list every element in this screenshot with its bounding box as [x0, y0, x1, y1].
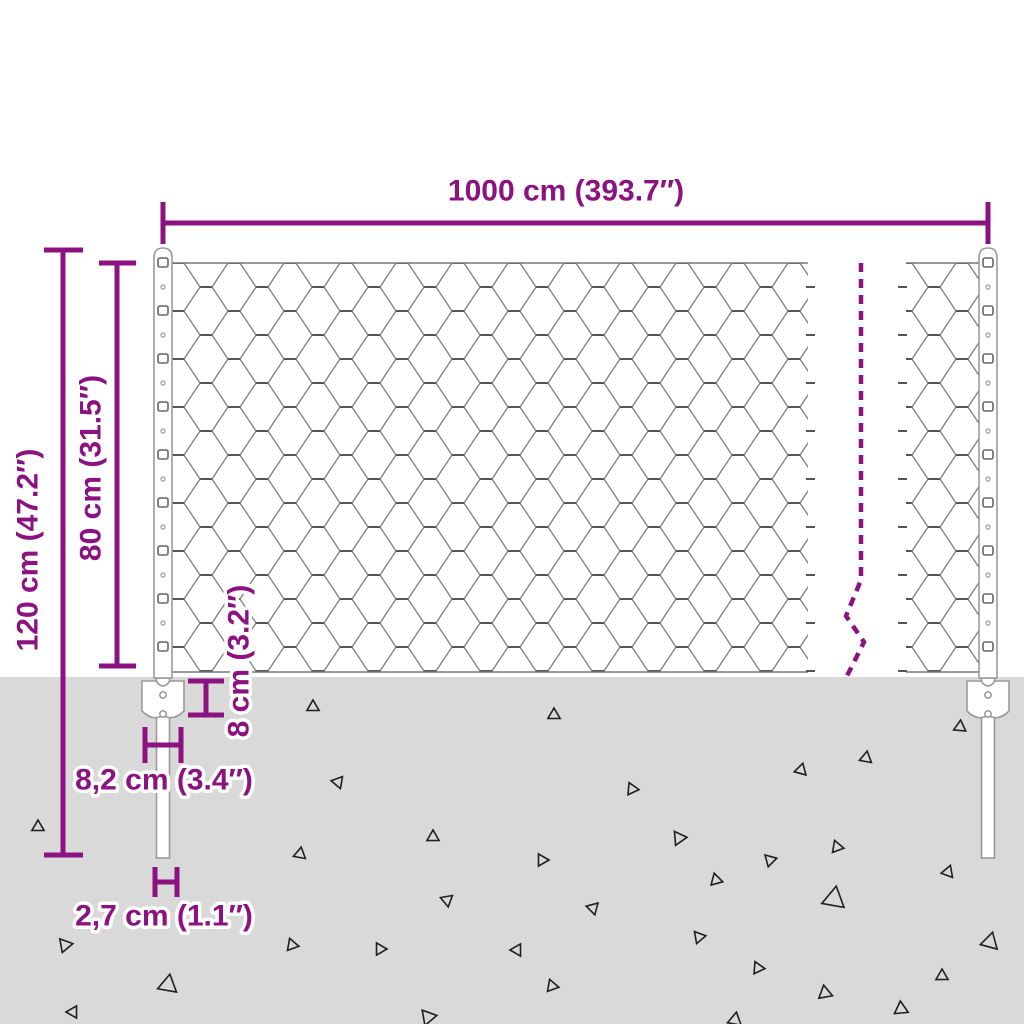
anchor-depth-dimension-label: 8 cm (3.2″) [223, 585, 256, 738]
mesh-cut-stubs-left [898, 287, 907, 671]
width-dimension-label: 1000 cm (393.7″) [448, 175, 684, 208]
fence-height-dimension-label: 80 cm (31.5″) [75, 375, 108, 561]
ground-soil [0, 677, 1024, 1024]
break-line-dashed [846, 263, 864, 676]
width-dimension-line [163, 202, 988, 244]
bracket-width-dimension-label: 8,2 cm (3.4″) [75, 764, 253, 797]
post-diameter-dimension-label: 2,7 cm (1.1″) [75, 900, 253, 933]
diagram-canvas: 1000 cm (393.7″) 120 cm (47.2″) 80 cm (3… [0, 0, 1024, 1024]
bracket-hole [985, 692, 991, 698]
bracket-hole [985, 711, 991, 717]
fence-dimension-diagram: 1000 cm (393.7″) 120 cm (47.2″) 80 cm (3… [0, 0, 1024, 1024]
total-height-dimension-label: 120 cm (47.2″) [12, 449, 45, 652]
bracket-hole [160, 692, 166, 698]
bracket-hole [160, 711, 166, 717]
